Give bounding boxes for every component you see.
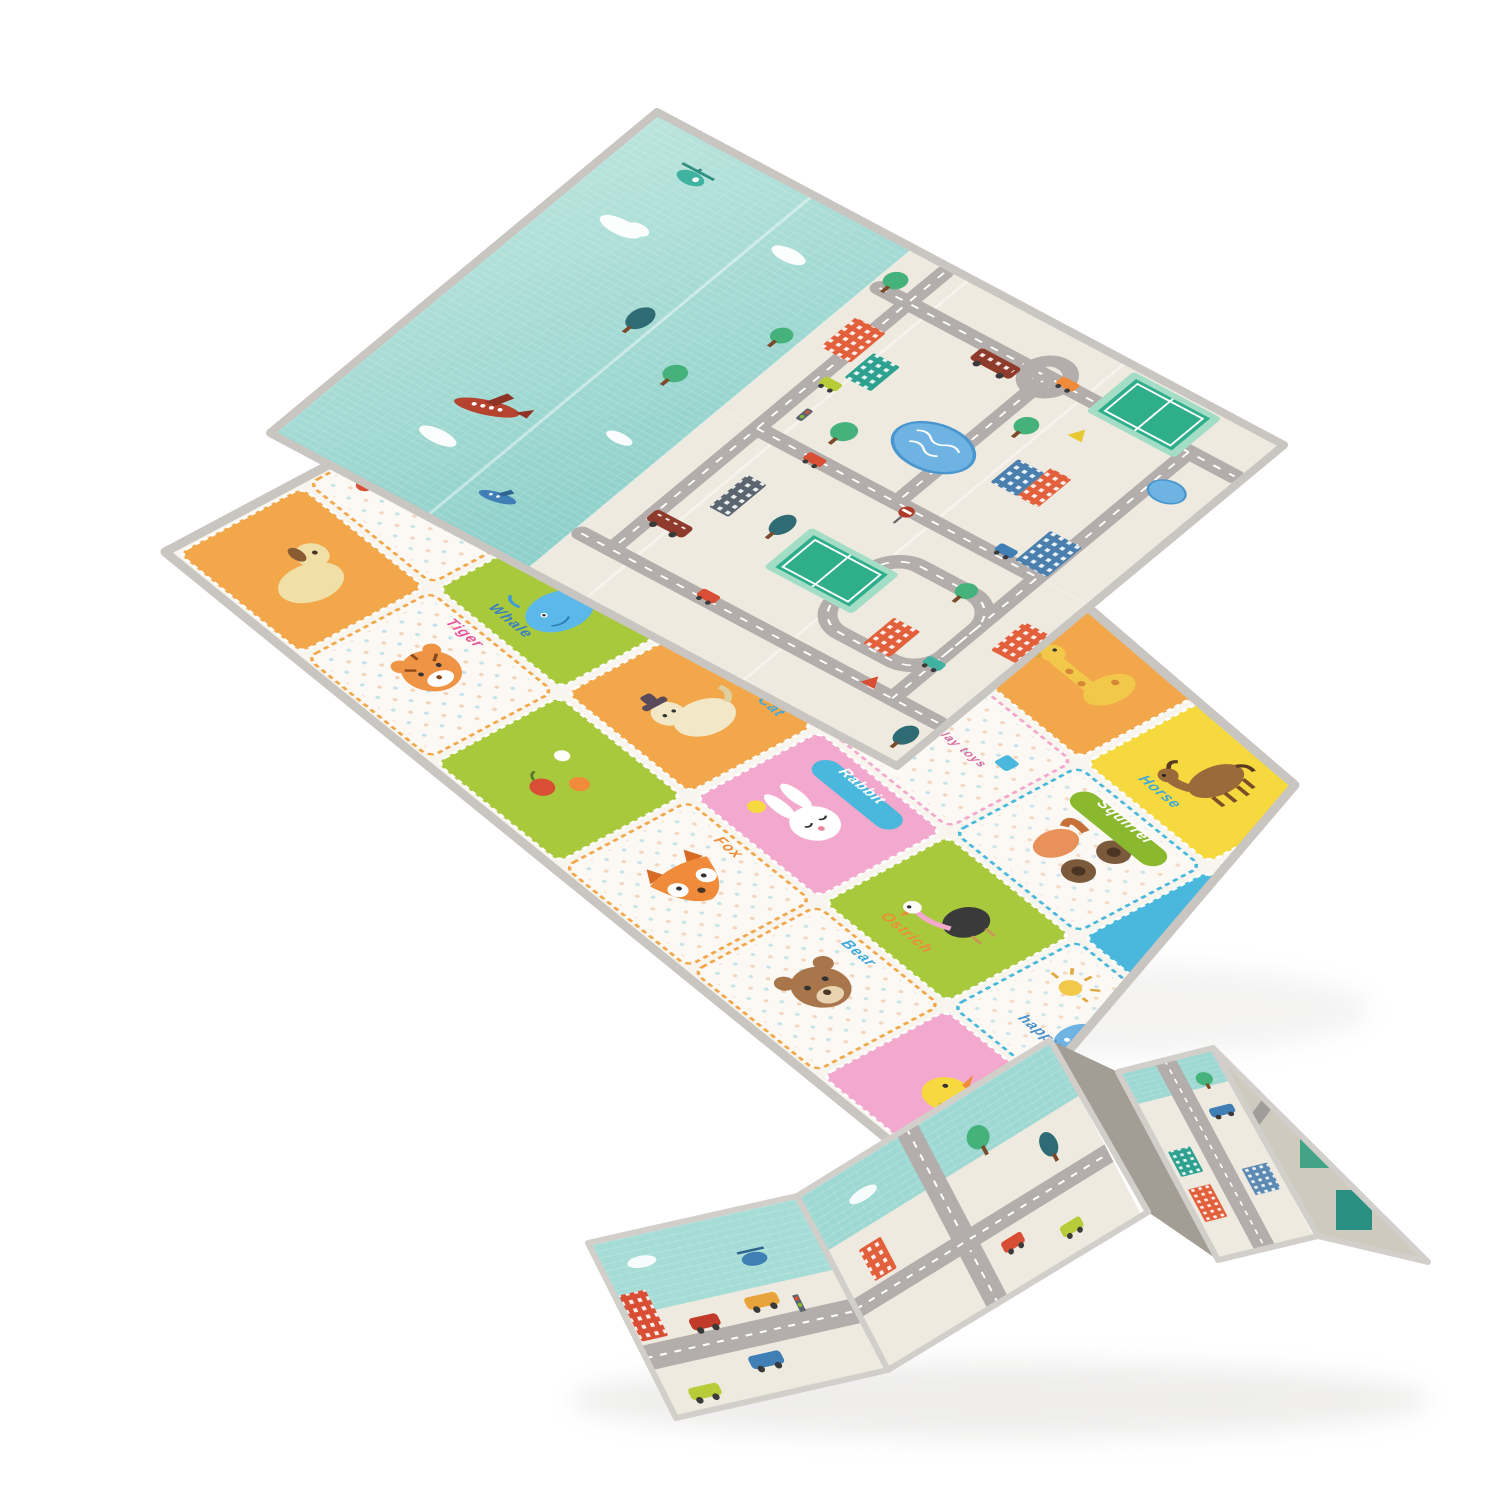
folded-mat [588, 1040, 1428, 1418]
product-photo: HELLO MY FRIEND Goldfish [0, 0, 1500, 1500]
bird-icon [1179, 933, 1241, 973]
heart-icon [1303, 862, 1376, 909]
play-mat-scene: HELLO MY FRIEND Goldfish [0, 0, 1500, 1500]
